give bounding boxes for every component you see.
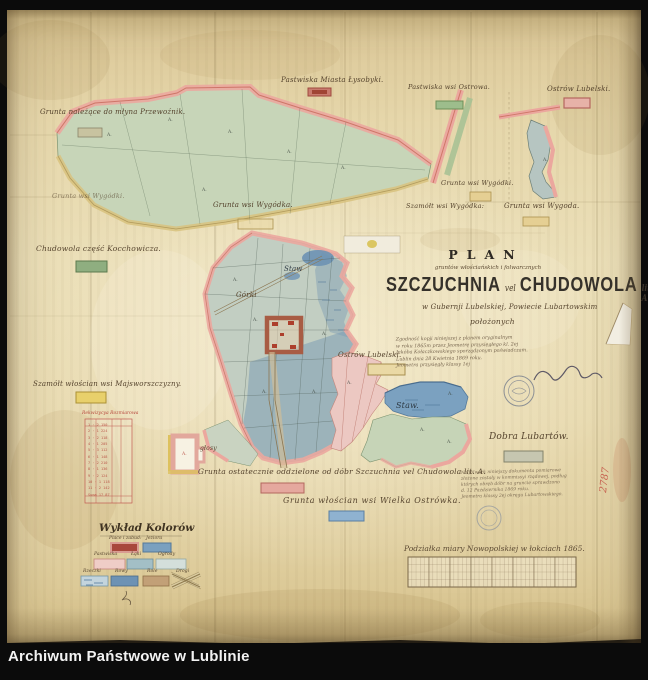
parcel-mark: A. (202, 188, 207, 193)
paper-patch-rect (344, 236, 400, 253)
legend-title: Wykład Kolorów (99, 522, 194, 534)
title-szczuchnia: SZCZUCHNIA (386, 274, 501, 297)
official-stamp-lower (477, 506, 501, 530)
parcel-mark: A. (347, 381, 352, 386)
label-wygoda-right: Grunta wsi Wygoda. (504, 202, 579, 210)
parcel-mark: A. (341, 166, 346, 171)
label-dobra-lubartow: Dobra Lubartów. (489, 432, 569, 442)
label-ostrowa-pastures: Pastwiska wsi Ostrowa. (408, 83, 490, 91)
legend-label-place: Place i zabud: (109, 536, 142, 541)
parcel-mark: A. (233, 278, 238, 283)
parcel-mark: A. (322, 332, 327, 337)
parcel-mark: A. (262, 390, 267, 395)
title-chudowola: CHUDOWOLA (520, 274, 638, 297)
legend-label-ogrody: Ogrody (158, 552, 175, 557)
archive-label: Archiwum Państwowe w Lublinie (8, 648, 250, 665)
parcel-mark: A. (253, 318, 258, 323)
label-mill-grounds: Grunta należące do młyna Przewoźnik. (40, 108, 185, 116)
title-location-line: w Gubernji Lubelskiej, Powiecie Lubartow… (422, 303, 598, 311)
label-wygodki-right: Grunta wsi Wygódki. (441, 179, 514, 187)
label-glosy: głosy (200, 445, 217, 452)
label-ostrow-lubelski-top: Ostrów Lubelski. (547, 85, 610, 93)
legend-label-pastwiska: Pastwiska (94, 552, 117, 557)
parcel-mark: A. (543, 158, 548, 163)
parcel-mark: A. (107, 133, 112, 138)
survey-table-title: Rekwizycya Rozmiarowa (82, 411, 138, 416)
scanned-map-page: Grunta należące do młyna Przewoźnik. Pas… (0, 0, 648, 680)
label-staw-upper: Staw (284, 265, 303, 273)
parcel-mark: A. (420, 428, 425, 433)
label-separated-grounds: Grunta ostatecznie oddzielone od dóbr Sz… (198, 467, 486, 476)
certification-note: Zgodność kopji niniejszej z planem orygi… (396, 334, 582, 370)
label-wielka-ostrowka: Grunta włościan wsi Wielka Ostrówka. (283, 496, 461, 505)
parcel-mark: A. (312, 390, 317, 395)
official-stamp-title (504, 376, 534, 406)
parcel-mark: A. (228, 130, 233, 135)
label-staw-lower: Staw. (396, 401, 419, 410)
scale-bar-caption: Podziałka miary Nowopolskiej w łokciach … (404, 544, 585, 553)
legend-label-jeziora: Jeziora (146, 536, 162, 541)
legend-label-rowy: Rowy (115, 569, 128, 574)
farmstead-compound (267, 318, 301, 352)
legend-label-role: Role (147, 569, 157, 574)
survey-table-rows: 1 · 2 150 2 · 1 224 3 · 2 118 4 · 1 205 … (88, 422, 110, 498)
archive-watermark-bar: Archiwum Państwowe w Lublinie (8, 648, 250, 665)
parcel-mark: A. (182, 452, 187, 457)
scale-bar (408, 557, 576, 587)
title-vel: vel (505, 284, 516, 294)
dobra-lubartow-note: Na folwark niniejszy dokumenta pomiarowe… (461, 467, 602, 501)
legend-label-laki: Łąki (131, 552, 141, 557)
paper-tear-triangle (606, 303, 632, 345)
label-wygodka-mid: Grunta wsi Wygódka. (213, 201, 293, 209)
parcel-mark: A. (447, 440, 452, 445)
label-szamotel-wygodka: Szamółt wsi Wygódka: (406, 202, 484, 210)
parcel-mark: A. (168, 118, 173, 123)
parcel-mark: A. (287, 150, 292, 155)
drogi-crosshatch (171, 572, 201, 589)
map-main-title: SZCZUCHNIA vel CHUDOWOLA lit. A. (386, 274, 632, 304)
parcel-mark: A. (448, 392, 453, 397)
label-ostrow-lubelski-mid: Ostrów Lubelski. (338, 351, 401, 359)
legend-label-drogi: Drogi (176, 569, 189, 574)
label-gorki: Górki (236, 291, 257, 299)
label-lysobyki-pastures: Pastwiska Miasta Łysobyki. (281, 76, 383, 84)
label-chudowola-part: Chudowola część Kocchowicza. (36, 244, 161, 253)
surveyor-signature (534, 366, 602, 380)
label-majsworszczyzna: Szamółt włościan wsi Majsworszczyzny. (33, 380, 181, 388)
label-wygodki-left: Grunta wsi Wygódki. (52, 192, 125, 200)
title-lit-a: lit. A. (642, 284, 648, 304)
map-pond-south (385, 382, 468, 418)
map-title-script-line: gruntów włościańskich i folwarcznych (428, 265, 548, 271)
title-located-word: położonych (470, 317, 515, 326)
map-title-plan: PLAN (436, 247, 536, 262)
legend-label-rzeczki: Rzeczki (83, 569, 101, 574)
